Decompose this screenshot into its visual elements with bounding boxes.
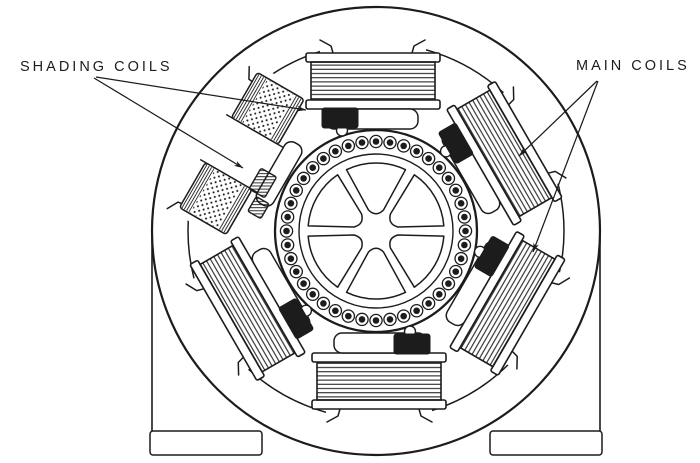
rotor-bar <box>442 172 454 184</box>
rotor-bar <box>450 266 462 278</box>
rotor-bar <box>398 310 410 322</box>
rotor-bar <box>280 225 292 237</box>
rotor-bar <box>423 297 435 309</box>
rotor-bar <box>329 305 341 317</box>
rotor-bar <box>282 211 294 223</box>
rotor-bar <box>370 135 382 147</box>
rotor-bar <box>317 297 329 309</box>
main-coils-label: MAIN COILS <box>576 58 690 74</box>
rotor-bar <box>423 152 435 164</box>
stator-poles <box>165 37 579 425</box>
rotor-bar <box>342 310 354 322</box>
rotor-rim <box>275 130 477 332</box>
rotor-bar <box>384 313 396 325</box>
base-foot-left <box>150 431 262 455</box>
figure-container: SHADING COILS MAIN COILS <box>0 0 700 463</box>
rotor-bar <box>455 197 467 209</box>
rotor-bar <box>459 225 471 237</box>
rotor-bar <box>317 152 329 164</box>
rotor-bar <box>398 140 410 152</box>
pole-bottom <box>312 326 446 425</box>
rotor-bar <box>297 278 309 290</box>
rotor-bar <box>285 253 297 265</box>
rotor-bar <box>282 239 294 251</box>
rotor-bar <box>411 145 423 157</box>
pole-top <box>306 37 440 136</box>
rotor-bar <box>370 314 382 326</box>
pole-lower-left <box>176 223 329 389</box>
rotor-bar <box>411 305 423 317</box>
rotor-bar <box>433 162 445 174</box>
rotor-bar <box>442 278 454 290</box>
rotor-bar <box>290 184 302 196</box>
rotor-bar <box>329 145 341 157</box>
pole-upper-right <box>423 73 576 239</box>
rotor-bar <box>297 172 309 184</box>
rotor-bar <box>458 239 470 251</box>
pole-upper-left <box>165 60 329 253</box>
motor-diagram: SHADING COILS MAIN COILS <box>0 0 700 463</box>
base-foot-right <box>490 431 602 455</box>
rotor-bar <box>433 288 445 300</box>
rotor-bar <box>356 137 368 149</box>
rotor-bar <box>307 288 319 300</box>
rotor-bar <box>285 197 297 209</box>
rotor-bar <box>384 137 396 149</box>
rotor-bar <box>342 140 354 152</box>
rotor-bar <box>458 211 470 223</box>
rotor-bar <box>356 313 368 325</box>
rotor-bar <box>455 253 467 265</box>
rotor-spoke-wheel <box>302 163 449 299</box>
rotor-bar <box>307 162 319 174</box>
rotor-bar <box>450 184 462 196</box>
shading-coils-label: SHADING COILS <box>20 59 173 75</box>
rotor <box>275 130 477 332</box>
rotor-bar <box>290 266 302 278</box>
